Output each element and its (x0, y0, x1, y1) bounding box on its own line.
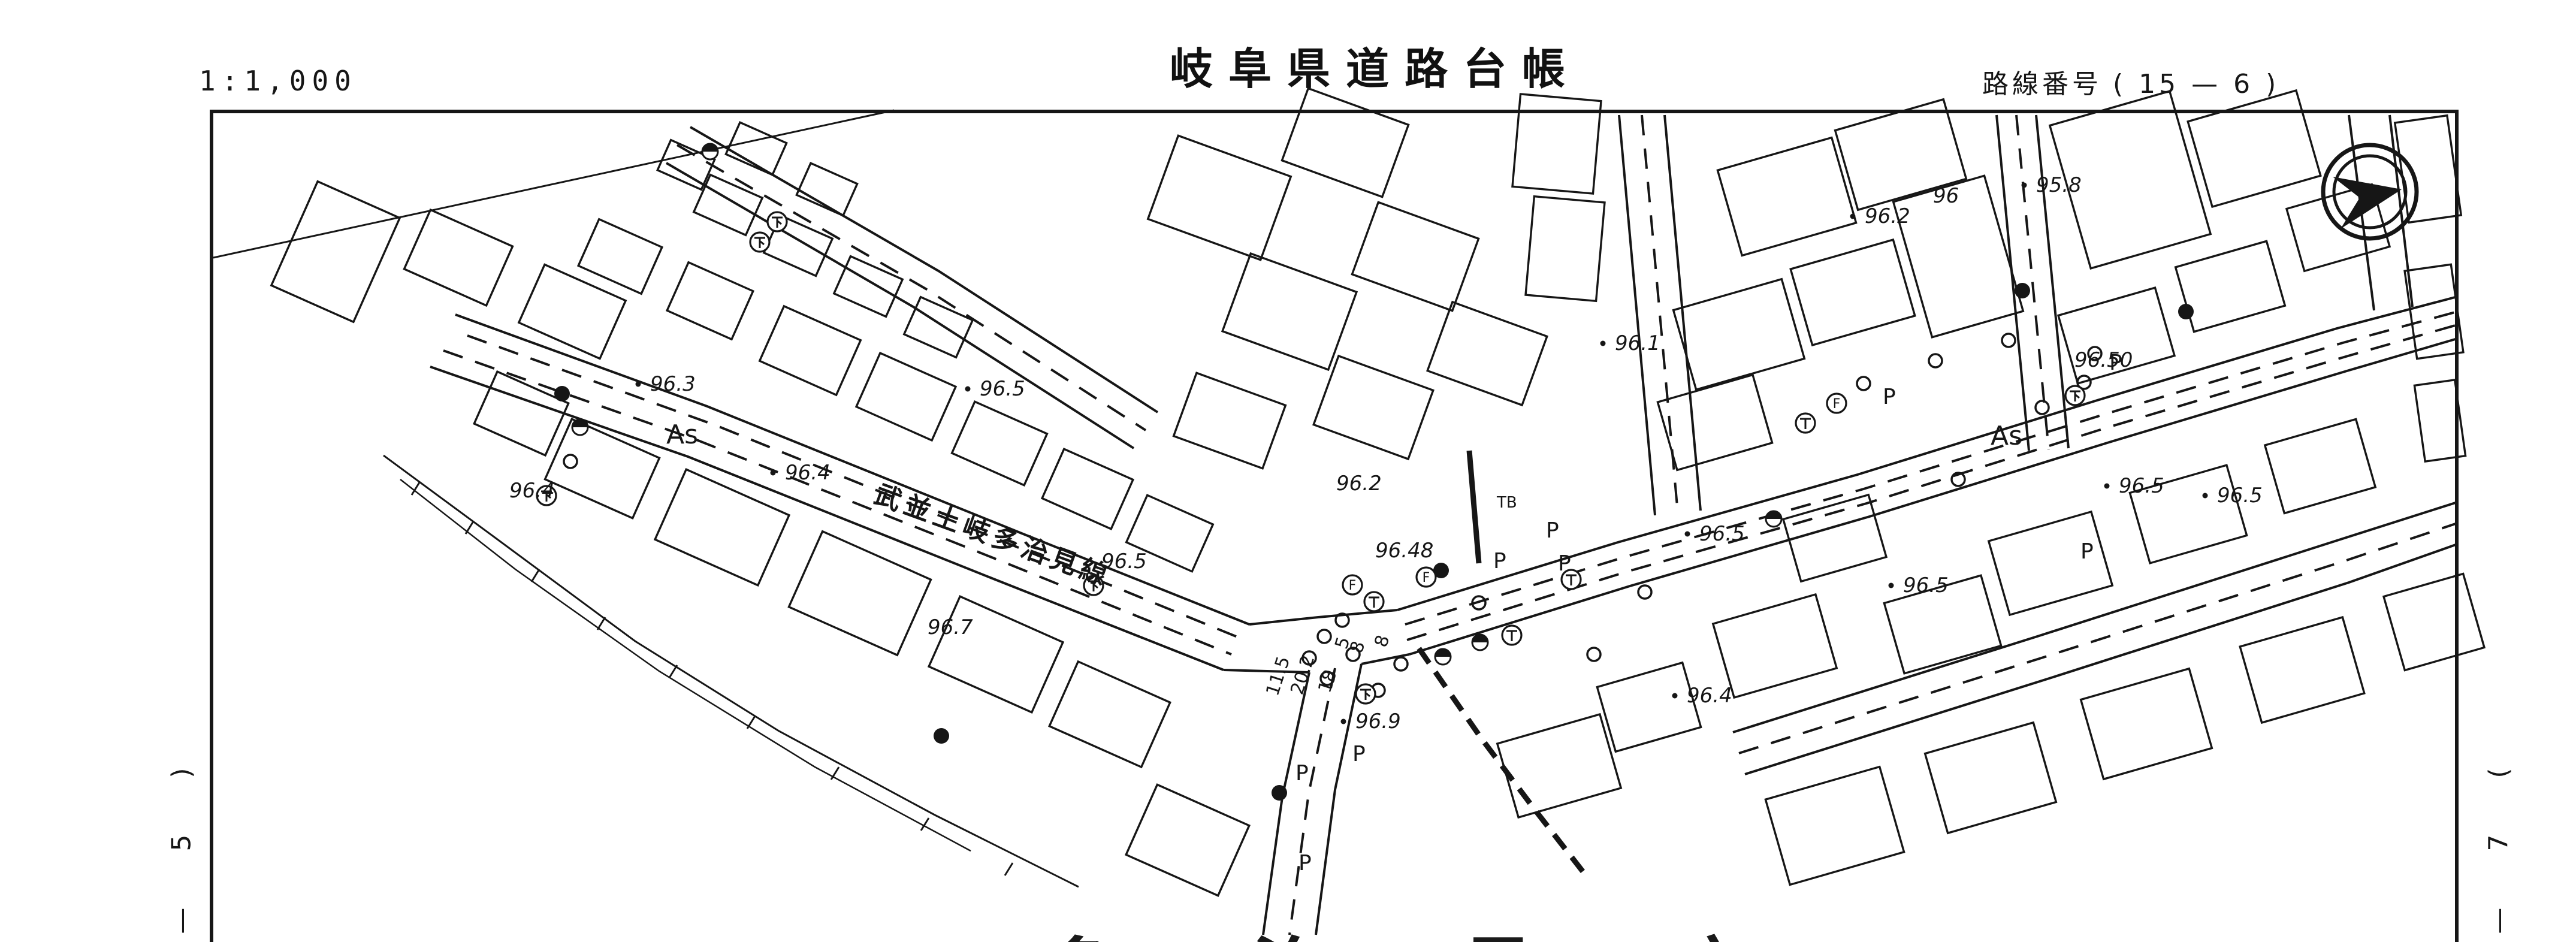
sheet-join-label-left: — 5 ) (167, 744, 197, 934)
sheet-join-label-right: — 7 ( (2484, 744, 2514, 934)
map-frame-border (210, 110, 2459, 942)
route-number-value: ( 15 — 6 ) (2113, 69, 2279, 99)
map-scale: 1:1,000 (199, 65, 357, 97)
road-ledger-sheet: { "header": { "scale": "1:1,000", "title… (0, 0, 2576, 942)
route-number: 路線番号( 15 — 6 ) (1982, 62, 2279, 101)
page-title: 岐阜県道路台帳 (1170, 34, 1581, 96)
route-number-label: 路線番号 (1982, 70, 2102, 99)
